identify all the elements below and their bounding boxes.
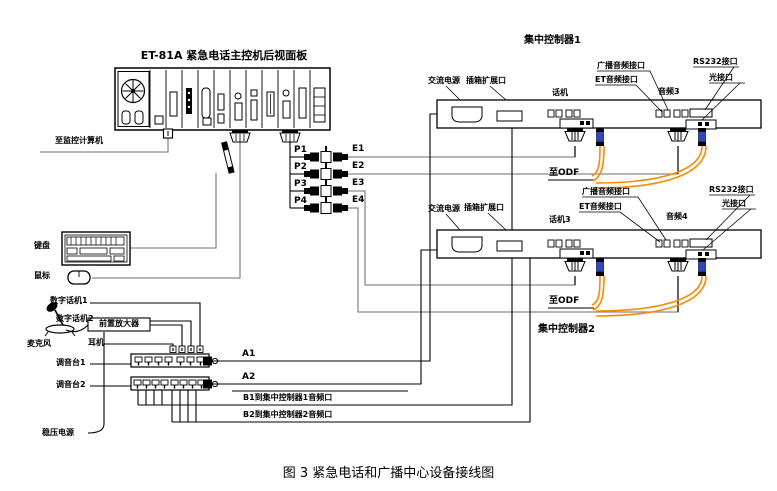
b1-bus-label: B1到集中控制器1音频口 — [243, 394, 332, 403]
ctrl1-optical-label: 光接口 — [709, 74, 733, 83]
panel-connectors — [164, 129, 301, 174]
ctrl1-to-odf-label: 至ODF — [549, 169, 579, 179]
power-supply-label: 稳压电源 — [42, 429, 74, 438]
fiber-connector-icon — [698, 128, 706, 146]
ctrl1-phone-port-label: 话机 — [552, 89, 568, 98]
dsub-connector-icon — [230, 130, 250, 142]
controller-1-title: 集中控制器1 — [524, 31, 581, 46]
wiring-diagram-canvas — [0, 0, 777, 491]
pe-row — [304, 169, 348, 180]
keyboard-icon — [62, 232, 130, 265]
mixer-strip-1 — [131, 346, 218, 367]
ctrl1-rs232-label: RS232接口 — [693, 58, 738, 67]
a1-label: A1 — [242, 350, 255, 360]
controller-1-box — [437, 100, 761, 129]
mouse-icon — [68, 271, 90, 284]
dsub-connector-icon — [280, 130, 300, 142]
port-e3-label: E3 — [352, 179, 364, 189]
handset-connector-icon — [565, 128, 585, 141]
ctrl1-ac-power-label: 交流电源 — [428, 77, 460, 86]
wiring-diagram: ET-81A 紧急电话主控机后视面板 至监控计算机 键盘 鼠标 数字话机1 数字… — [0, 0, 777, 491]
ctrl2-broadcast-audio-label: 广播音频接口 — [582, 188, 630, 197]
port-p4-label: P4 — [294, 197, 307, 207]
microphone-label: 麦克风 — [27, 340, 51, 349]
ctrl1-et-audio-label: ET音频接口 — [595, 76, 638, 85]
preamp-label: 前置放大器 — [89, 320, 149, 329]
controller-2-title: 集中控制器2 — [538, 320, 595, 335]
mixer-2-label: 调音台2 — [56, 381, 86, 390]
port-p1-label: P1 — [294, 146, 307, 156]
ctrl2-et-audio-label: ET音频接口 — [579, 203, 622, 212]
digital-phone-1-label: 数字话机1 — [50, 297, 88, 306]
ctrl1-broadcast-audio-label: 广播音频接口 — [597, 62, 645, 71]
ctrl2-audio-label: 音频4 — [666, 213, 688, 222]
port-e1-label: E1 — [352, 145, 364, 155]
ac-power-socket-icon — [452, 237, 482, 252]
handset-connector-icon — [668, 128, 688, 141]
fiber-connector-icon — [596, 128, 604, 146]
pe-row — [304, 152, 348, 163]
ctrl2-optical-label: 光接口 — [722, 200, 746, 209]
pe-row — [304, 203, 348, 214]
ctrl2-rs232-label: RS232接口 — [709, 186, 754, 195]
expansion-port-icon — [497, 241, 522, 251]
a2-label: A2 — [242, 373, 255, 383]
figure-caption: 图 3 紧急电话和广播中心设备接线图 — [0, 462, 777, 481]
ctrl2-expansion-label: 插箱扩展口 — [464, 204, 504, 213]
port-p2-label: P2 — [294, 163, 307, 173]
handset-connector-icon — [668, 258, 688, 271]
callout-leaders — [446, 67, 756, 250]
ac-power-socket-icon — [452, 107, 482, 122]
digital-phone-2-label: 数字话机2 — [56, 315, 94, 324]
ctrl2-to-odf-label: 至ODF — [549, 297, 579, 307]
to-monitor-label: 至监控计算机 — [55, 137, 103, 146]
port-p3-label: P3 — [294, 180, 307, 190]
fiber-connector-icon — [596, 258, 604, 276]
b2-bus-label: B2到集中控制器2音频口 — [243, 411, 332, 420]
ctrl1-audio-label: 音频3 — [658, 88, 680, 97]
mouse-label: 鼠标 — [34, 272, 50, 281]
fiber-connector-icon — [698, 258, 706, 276]
mixer-strip-2 — [131, 377, 218, 390]
expansion-port-icon — [497, 111, 522, 121]
mixer-1-label: 调音台1 — [56, 359, 86, 368]
handset-connector-icon — [565, 258, 585, 271]
port-e2-label: E2 — [352, 162, 364, 172]
ctrl2-ac-power-label: 交流电源 — [428, 205, 460, 214]
controller-2-box — [437, 230, 761, 259]
fan-icon — [122, 80, 145, 103]
main-panel-title: ET-81A 紧急电话主控机后视面板 — [118, 47, 330, 63]
main-panel-graphic — [115, 68, 330, 130]
pe-row — [304, 186, 348, 197]
ctrl2-phone-port-label: 话机3 — [549, 216, 571, 225]
ctrl1-expansion-label: 插箱扩展口 — [466, 77, 506, 86]
port-e4-label: E4 — [352, 196, 364, 206]
headset-label: 耳机 — [88, 339, 104, 348]
serial-plug-icon — [221, 141, 235, 174]
keyboard-label: 键盘 — [34, 242, 50, 251]
